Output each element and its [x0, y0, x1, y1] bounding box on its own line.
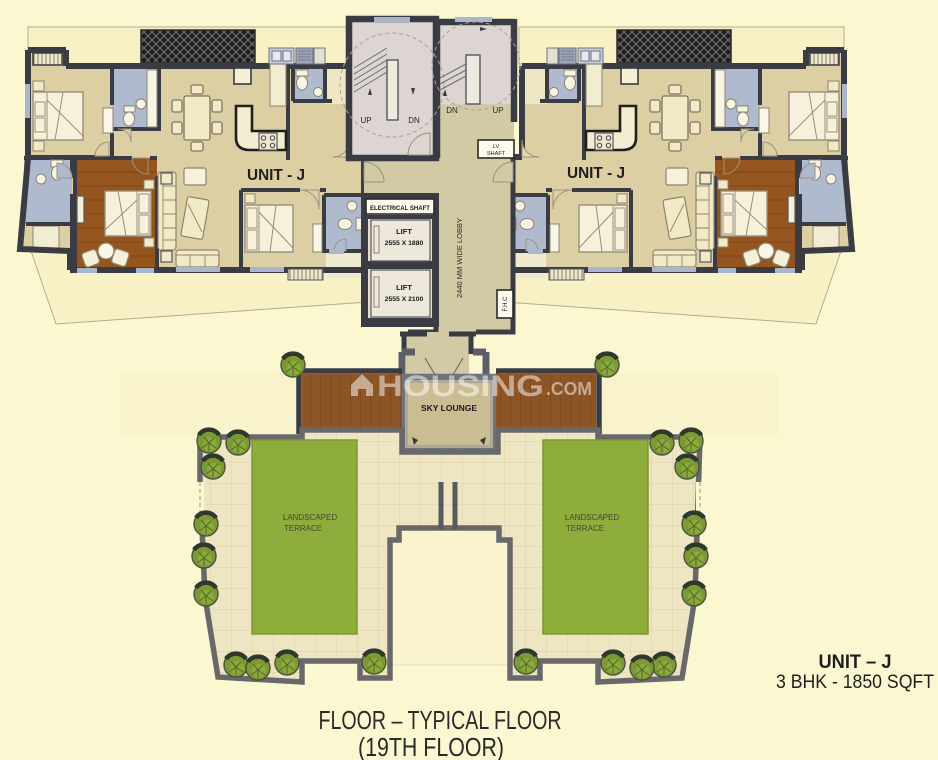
svg-text:UNIT - J: UNIT - J — [567, 165, 625, 182]
svg-text:FLOOR – TYPICAL FLOOR: FLOOR – TYPICAL FLOOR — [319, 705, 562, 735]
svg-text:UNIT - J: UNIT - J — [247, 167, 305, 184]
svg-text:2555 X 1880: 2555 X 1880 — [385, 240, 424, 247]
svg-text:LIFT: LIFT — [396, 227, 412, 236]
svg-text:TERRACE: TERRACE — [566, 524, 604, 533]
svg-text:UNIT – J: UNIT – J — [819, 652, 892, 673]
svg-text:UP: UP — [492, 106, 503, 115]
svg-text:ELECTRICAL SHAFT: ELECTRICAL SHAFT — [370, 205, 431, 212]
svg-text:(19TH FLOOR): (19TH FLOOR) — [358, 732, 504, 760]
svg-text:HOUSING: HOUSING — [377, 370, 544, 403]
svg-text:SKY LOUNGE: SKY LOUNGE — [421, 403, 477, 413]
svg-text:LANDSCAPED: LANDSCAPED — [283, 513, 337, 522]
svg-text:TERRACE: TERRACE — [284, 524, 322, 533]
svg-text:SHAFT: SHAFT — [487, 151, 506, 157]
svg-text:2440 MM WIDE LOBBY: 2440 MM WIDE LOBBY — [455, 218, 464, 298]
svg-text:UP: UP — [360, 116, 371, 125]
svg-text:.COM: .COM — [546, 379, 592, 399]
svg-text:LIFT: LIFT — [396, 283, 412, 292]
svg-text:LV: LV — [493, 144, 500, 150]
svg-text:DN: DN — [446, 106, 458, 115]
svg-text:DN: DN — [408, 116, 420, 125]
svg-text:LANDSCAPED: LANDSCAPED — [565, 513, 619, 522]
svg-text:2555 X 2100: 2555 X 2100 — [385, 296, 424, 303]
svg-text:3 BHK - 1850 SQFT: 3 BHK - 1850 SQFT — [776, 671, 934, 693]
svg-text:F.H.C: F.H.C — [503, 296, 509, 312]
